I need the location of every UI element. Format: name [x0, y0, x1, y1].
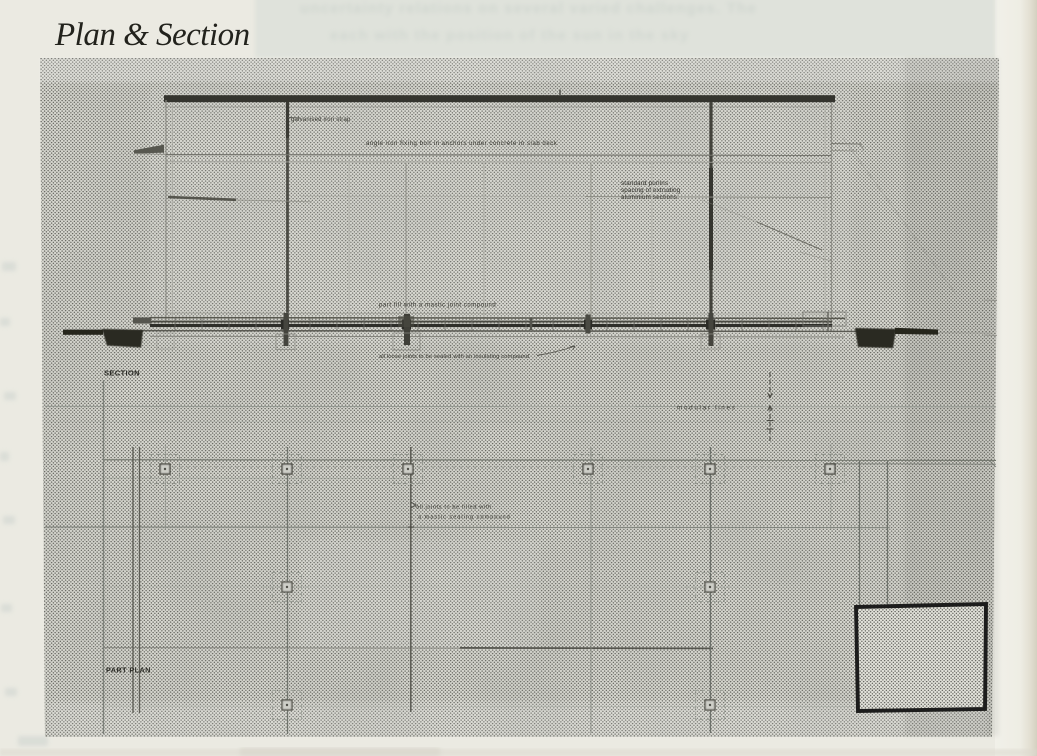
svg-text:uncertainty relations on sever: uncertainty relations on several varied … — [300, 0, 757, 17]
svg-text:SECTION: SECTION — [104, 369, 140, 378]
svg-text:aluminium sections: aluminium sections — [621, 194, 677, 201]
svg-text:all loose joints to be sealed: all loose joints to be sealed with an in… — [379, 354, 529, 360]
svg-text:PART PLAN: PART PLAN — [106, 666, 151, 675]
svg-text:galvanised iron strap: galvanised iron strap — [291, 117, 351, 123]
svg-text:modular lines: modular lines — [677, 405, 737, 412]
svg-text:part fill with a mastic joint: part fill with a mastic joint compound — [379, 303, 496, 309]
svg-text:Plan & Section: Plan & Section — [54, 17, 250, 53]
svg-text:each with the position of the: each with the position of the sun in the… — [330, 27, 690, 44]
svg-text:a mastic sealing compound: a mastic sealing compound — [418, 515, 511, 521]
svg-text:standard purlins: standard purlins — [621, 180, 668, 187]
svg-text:spacing of extruding: spacing of extruding — [621, 187, 681, 194]
svg-text:all joints to be filled with: all joints to be filled with — [416, 505, 492, 511]
svg-text:angle iron fixing bolt in anch: angle iron fixing bolt in anchors under … — [366, 141, 558, 147]
